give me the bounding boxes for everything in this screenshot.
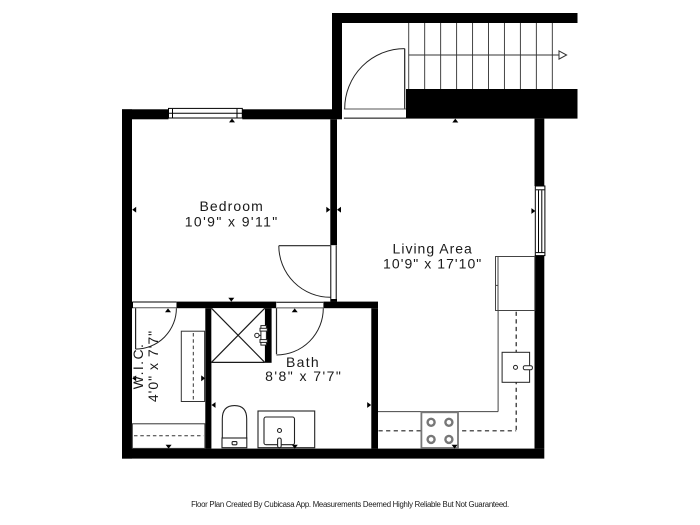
svg-text:4'0" x 7'7": 4'0" x 7'7" <box>145 330 161 402</box>
svg-text:Bedroom: Bedroom <box>199 198 264 214</box>
svg-text:Floor Plan Created By Cubicasa: Floor Plan Created By Cubicasa App. Meas… <box>191 500 509 509</box>
svg-text:10'9" x 17'10": 10'9" x 17'10" <box>383 255 482 271</box>
svg-text:8'8" x 7'7": 8'8" x 7'7" <box>265 368 342 384</box>
svg-text:W.I.C.: W.I.C. <box>130 343 146 390</box>
svg-text:10'9" x 9'11": 10'9" x 9'11" <box>185 213 279 229</box>
svg-text:Living Area: Living Area <box>393 240 473 256</box>
